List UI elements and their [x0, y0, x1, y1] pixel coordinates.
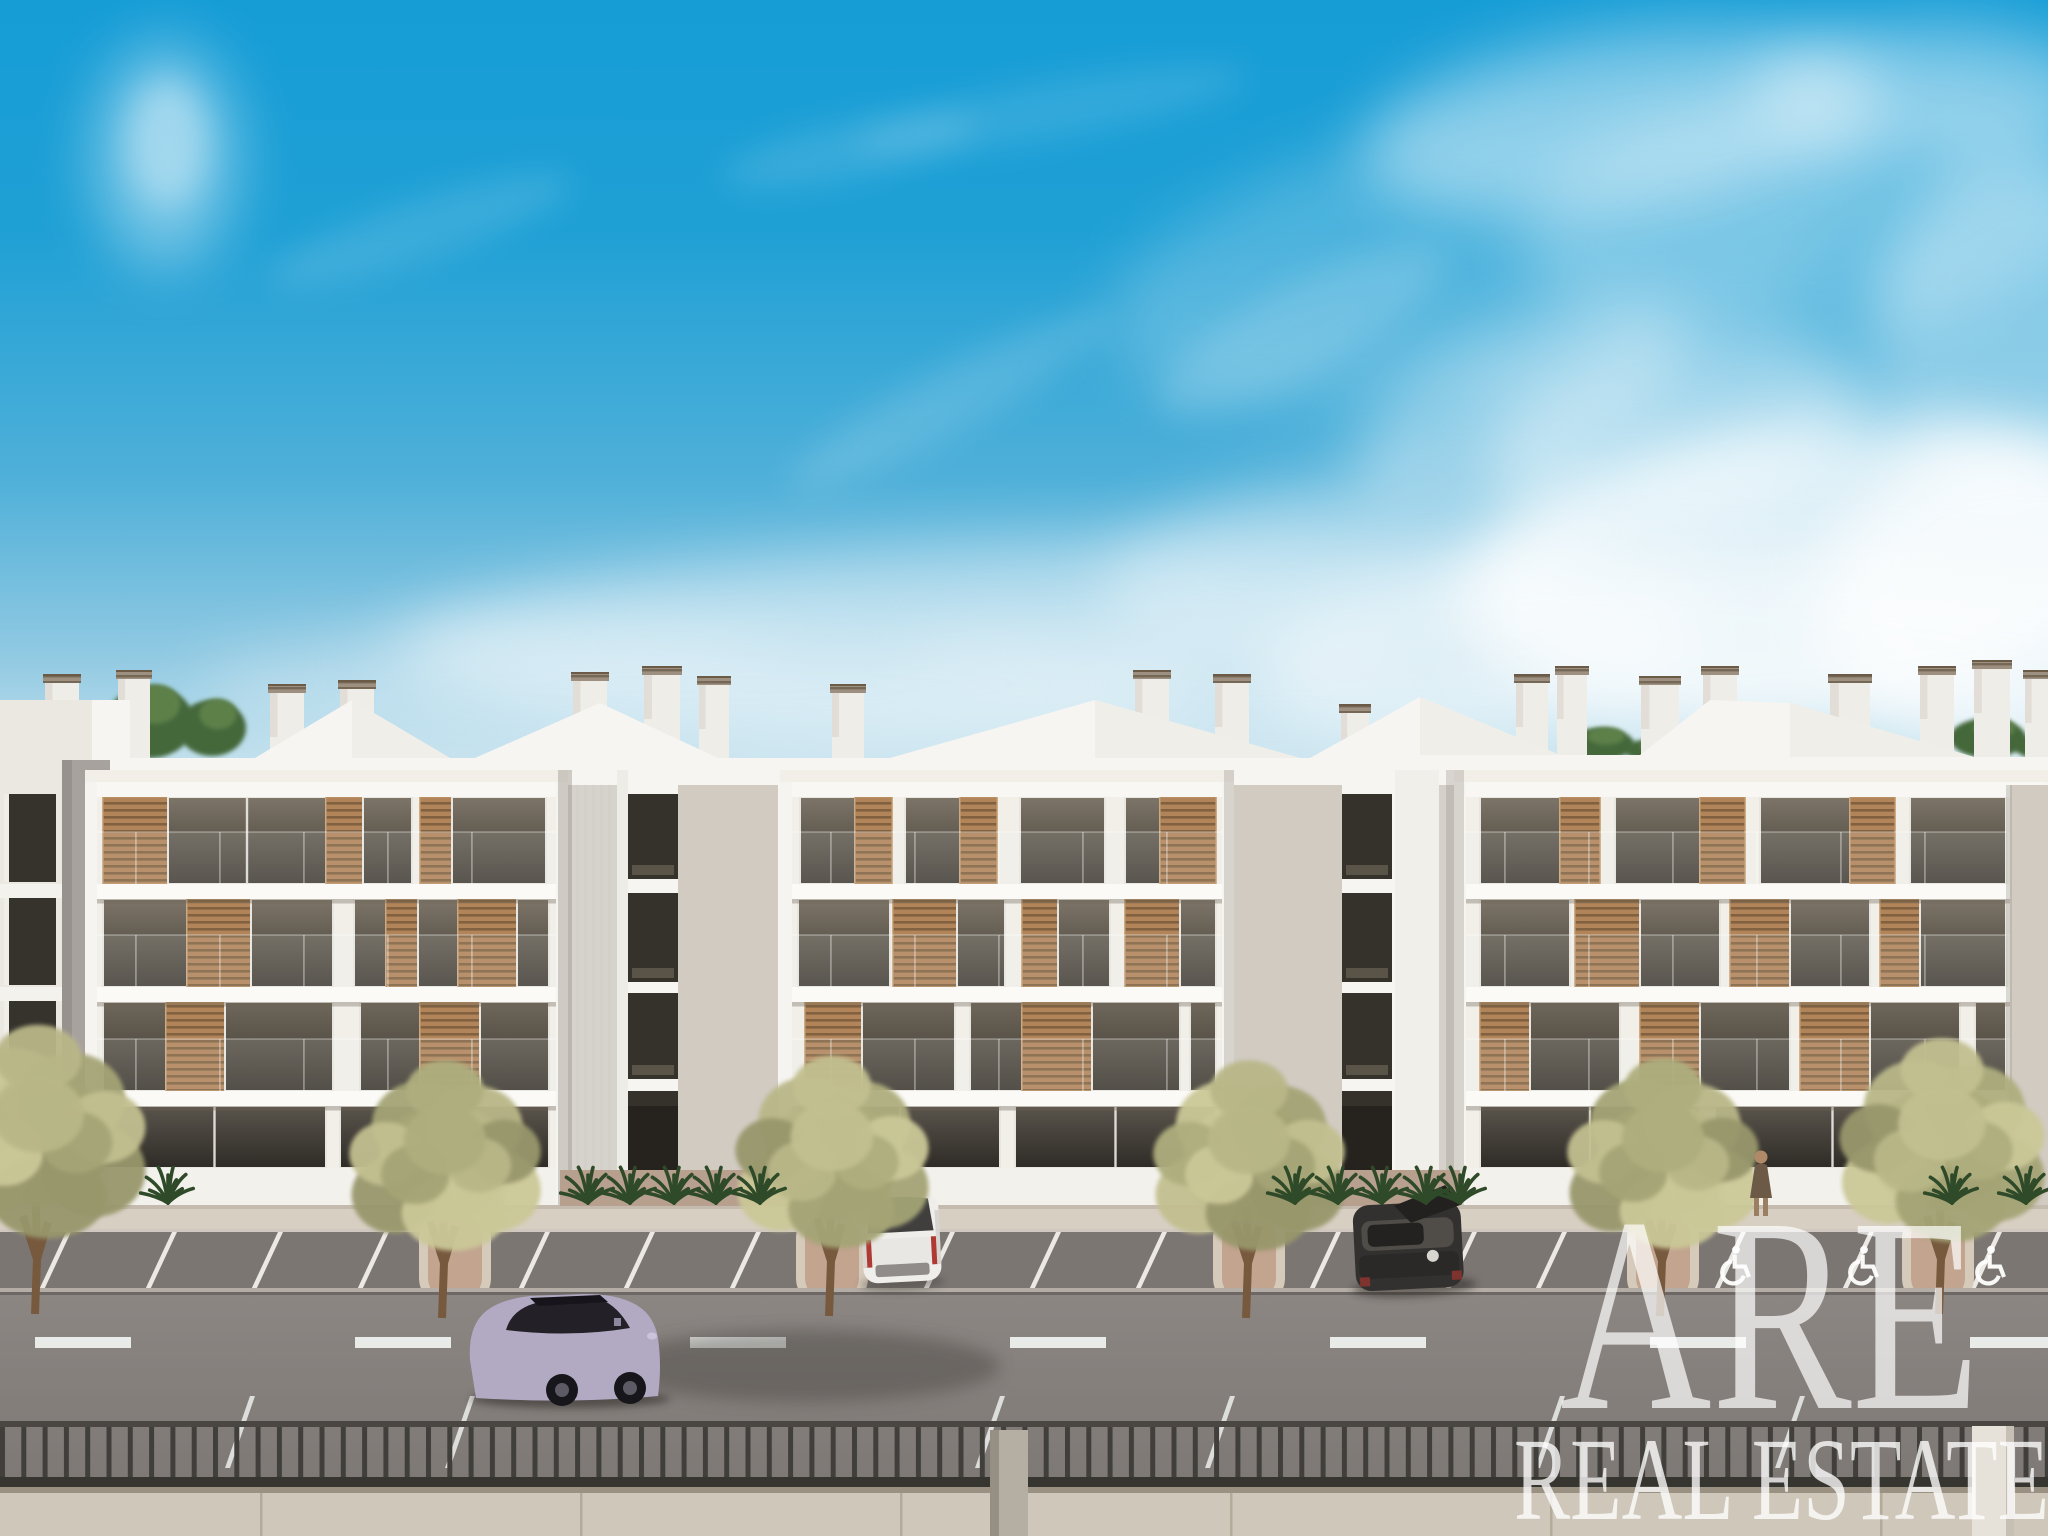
- svg-text:REAL ESTATE: REAL ESTATE: [1514, 1414, 2048, 1536]
